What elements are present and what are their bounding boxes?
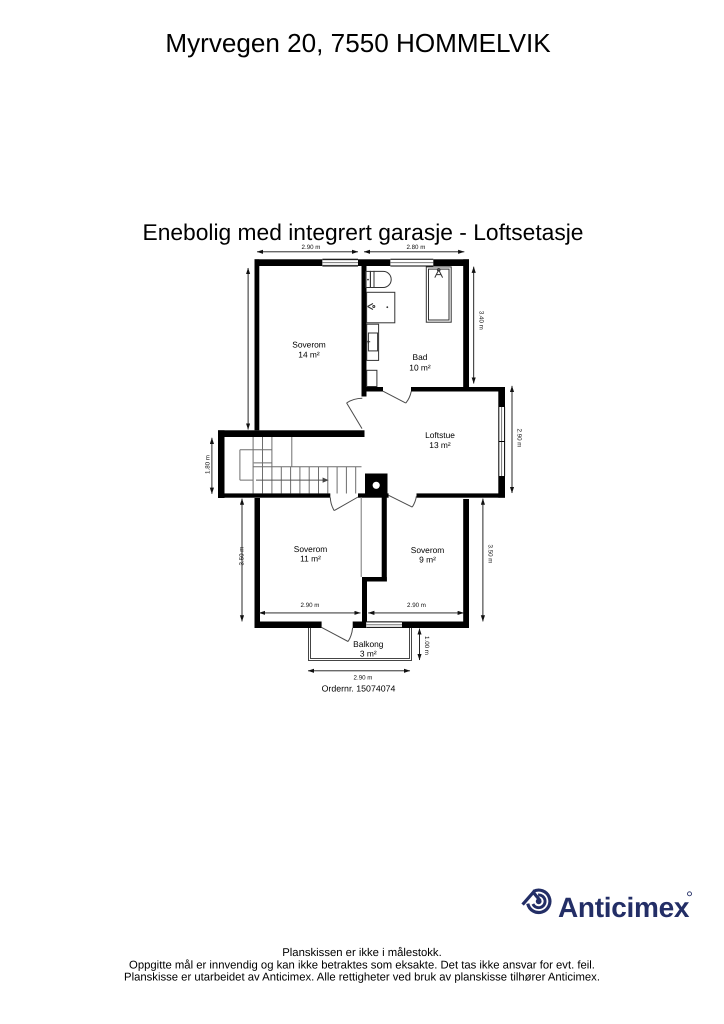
svg-text:Balkong: Balkong	[353, 639, 384, 649]
svg-text:3 m²: 3 m²	[360, 649, 377, 659]
svg-text:3.50 m: 3.50 m	[239, 547, 246, 566]
svg-text:Enebolig med integrert garasje: Enebolig med integrert garasje - Loftset…	[143, 219, 584, 245]
svg-text:Soverom: Soverom	[294, 544, 328, 554]
svg-text:2.90 m: 2.90 m	[516, 429, 523, 448]
svg-text:1.80 m: 1.80 m	[205, 455, 212, 474]
svg-text:1.00 m: 1.00 m	[423, 636, 430, 655]
svg-text:2.90 m: 2.90 m	[354, 675, 373, 682]
svg-text:11 m²: 11 m²	[300, 554, 321, 564]
svg-text:Ordernr. 15074074: Ordernr. 15074074	[322, 684, 396, 694]
svg-text:Soverom: Soverom	[292, 340, 326, 350]
svg-text:Anticimex: Anticimex	[558, 892, 690, 923]
svg-text:2.90 m: 2.90 m	[301, 602, 320, 609]
svg-text:13 m²: 13 m²	[429, 440, 451, 450]
svg-text:14 m²: 14 m²	[298, 350, 320, 360]
svg-text:Loftstue: Loftstue	[425, 430, 455, 440]
svg-text:Oppgitte mål er innvendig og k: Oppgitte mål er innvendig og kan ikke be…	[129, 958, 595, 971]
svg-text:2.90 m: 2.90 m	[302, 244, 321, 251]
svg-text:Planskisse er utarbeidet av An: Planskisse er utarbeidet av Anticimex. A…	[124, 971, 600, 983]
svg-text:Bad: Bad	[413, 352, 428, 362]
svg-text:Planskissen er ikke i målestok: Planskissen er ikke i målestokk.	[282, 946, 441, 959]
svg-text:3.50 m: 3.50 m	[487, 545, 494, 564]
svg-text:Myrvegen 20, 7550 HOMMELVIK: Myrvegen 20, 7550 HOMMELVIK	[165, 28, 551, 58]
svg-text:2.90 m: 2.90 m	[407, 602, 426, 609]
svg-text:2.80 m: 2.80 m	[406, 244, 425, 251]
svg-text:10 m²: 10 m²	[409, 363, 431, 373]
svg-text:Soverom: Soverom	[411, 545, 445, 555]
svg-text:3.40 m: 3.40 m	[477, 311, 484, 330]
svg-text:9 m²: 9 m²	[419, 555, 436, 565]
